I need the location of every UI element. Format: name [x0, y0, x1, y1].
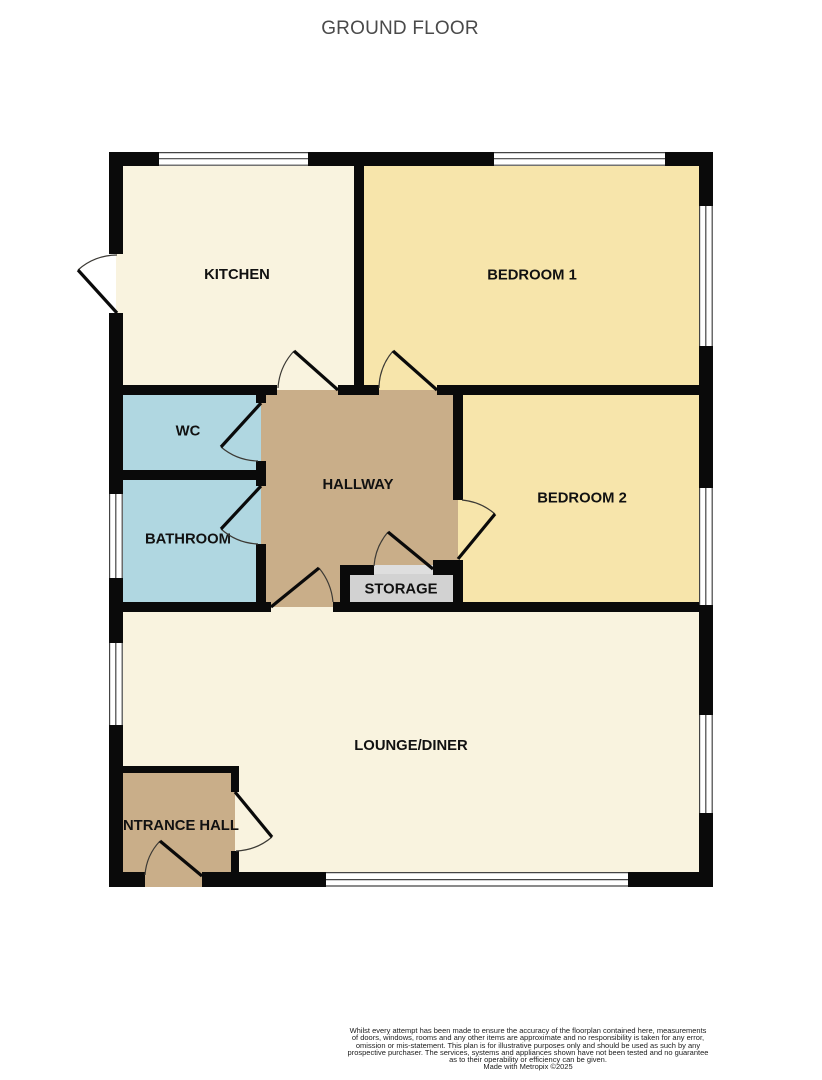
svg-text:LOUNGE/DINER: LOUNGE/DINER	[354, 738, 468, 754]
svg-text:BEDROOM 1: BEDROOM 1	[487, 268, 577, 284]
svg-text:WC: WC	[176, 424, 201, 440]
svg-text:STORAGE: STORAGE	[365, 582, 438, 598]
svg-text:BEDROOM 2: BEDROOM 2	[537, 491, 627, 507]
svg-text:HALLWAY: HALLWAY	[323, 477, 394, 493]
svg-text:KITCHEN: KITCHEN	[204, 267, 270, 283]
svg-text:BATHROOM: BATHROOM	[145, 532, 231, 548]
svg-text:ENTRANCE HALL: ENTRANCE HALL	[113, 818, 239, 834]
